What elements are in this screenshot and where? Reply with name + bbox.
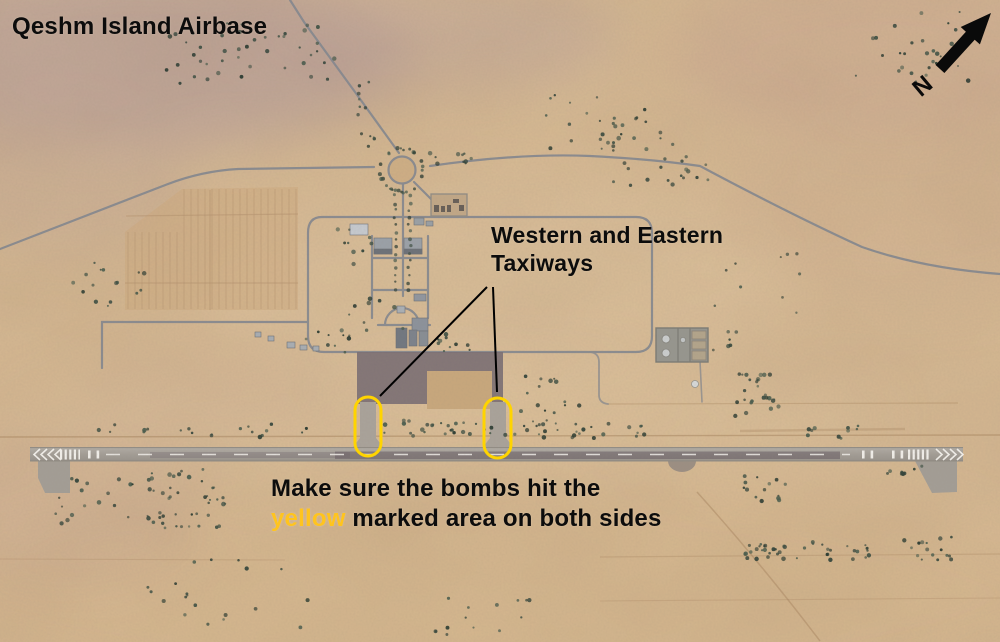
north-arrow-icon: N [907,13,991,102]
annotation-layer: N [0,0,1000,642]
target-instruction-line1: Make sure the bombs hit the [271,474,662,504]
leader-line-western [380,287,487,396]
taxiways-label: Western and Eastern Taxiways [491,221,723,277]
target-instruction: Make sure the bombs hit the yellow marke… [271,474,662,534]
western-taxiway-target-marker [355,397,381,456]
target-instruction-line2: yellow marked area on both sides [271,504,662,534]
eastern-taxiway-target-marker [484,398,511,458]
highlight-word: yellow [271,505,346,532]
annotated-satellite-map: N Qeshm Island Airbase Western and Easte… [0,0,1000,642]
leader-line-eastern [493,287,497,392]
target-instruction-line2-rest: marked area on both sides [346,505,662,532]
map-title: Qeshm Island Airbase [12,13,267,41]
taxiways-label-line2: Taxiways [491,249,723,277]
compass-north-letter: N [907,70,938,102]
taxiways-label-line1: Western and Eastern [491,221,723,249]
leader-lines [380,287,497,396]
